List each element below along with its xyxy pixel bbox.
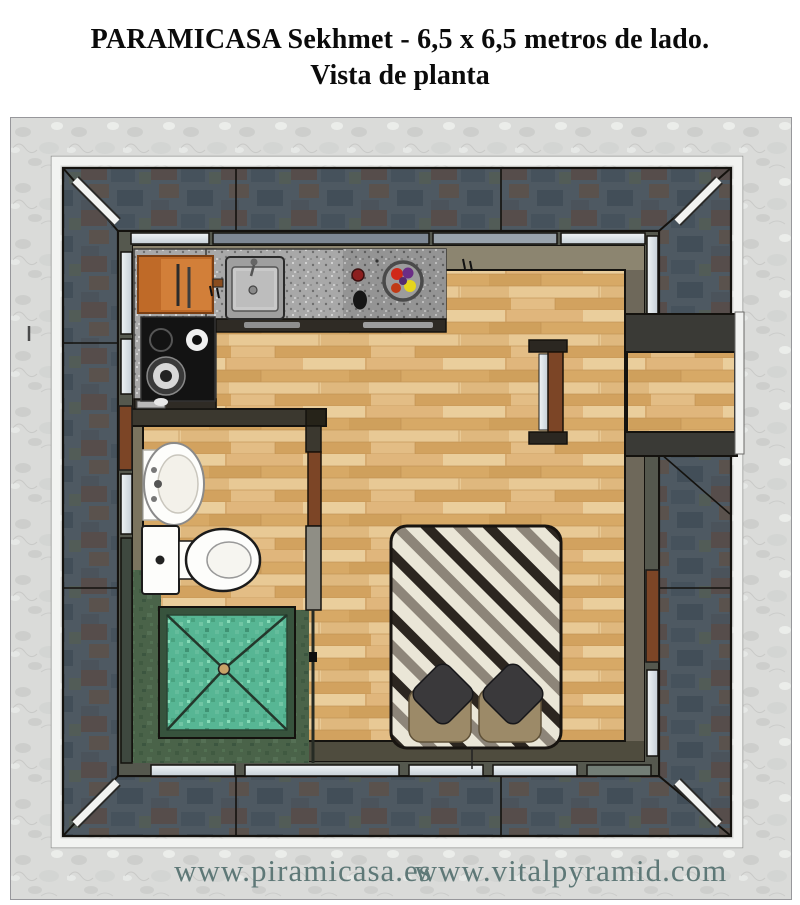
title-line-1: PARAMICASA Sekhmet - 6,5 x 6,5 metros de… xyxy=(0,22,800,58)
vestibule-floor xyxy=(627,352,735,432)
footer-url-right: www.vitalpyramid.com xyxy=(415,853,727,888)
page-title: PARAMICASA Sekhmet - 6,5 x 6,5 metros de… xyxy=(0,22,800,94)
fruit-bowl xyxy=(384,262,422,300)
window-right-1 xyxy=(647,236,658,314)
entry-door-glass xyxy=(539,354,548,430)
wall-cabinet xyxy=(119,406,132,470)
burner-knob xyxy=(154,398,168,406)
window-bottom-1 xyxy=(151,765,235,776)
utensil-handle xyxy=(213,279,223,287)
pedestal-sink xyxy=(143,443,204,525)
red-knob xyxy=(352,269,364,281)
stove xyxy=(141,317,215,406)
bed xyxy=(391,526,561,769)
entry-door xyxy=(548,352,563,432)
window-top-right xyxy=(561,233,645,244)
window-top-left xyxy=(131,233,209,244)
drawer-handle xyxy=(363,322,433,328)
window-left-1 xyxy=(121,252,132,334)
faucet-icon xyxy=(154,480,162,488)
vestibule-wall-bottom xyxy=(625,432,737,456)
toilet xyxy=(142,526,260,594)
floor-plan-rendering: www.piramicasa.es www.vitalpyramid.com xyxy=(11,118,791,899)
window-top-center xyxy=(213,233,429,244)
window-bottom-2 xyxy=(245,765,399,776)
right-wall-panel xyxy=(646,570,659,662)
flush-button xyxy=(156,556,165,565)
small-dish xyxy=(353,291,367,310)
window-bottom-5 xyxy=(587,765,651,776)
window-left-3 xyxy=(121,474,132,534)
window-left-2 xyxy=(121,339,132,394)
bathroom-door xyxy=(308,452,321,526)
title-line-2: Vista de planta xyxy=(0,58,800,94)
window-right-2 xyxy=(647,670,658,756)
shower-door-handle xyxy=(309,652,317,662)
window-bottom-4 xyxy=(493,765,577,776)
shower-drain xyxy=(219,664,230,675)
drawer-handle xyxy=(244,322,300,328)
window-top-center-right xyxy=(433,233,557,244)
floor-plan-page: { "page": { "title_line1": "PARAMICASA S… xyxy=(0,0,800,905)
faucet-icon xyxy=(251,259,258,266)
floor-plan-image: www.piramicasa.es www.vitalpyramid.com xyxy=(10,117,792,900)
kitchen-sink xyxy=(226,257,284,319)
wall-left-bath-panel xyxy=(121,538,132,763)
footer-url-left: www.piramicasa.es xyxy=(174,853,432,888)
vestibule-outer-trim xyxy=(735,312,744,454)
vestibule-wall-top xyxy=(625,314,737,352)
